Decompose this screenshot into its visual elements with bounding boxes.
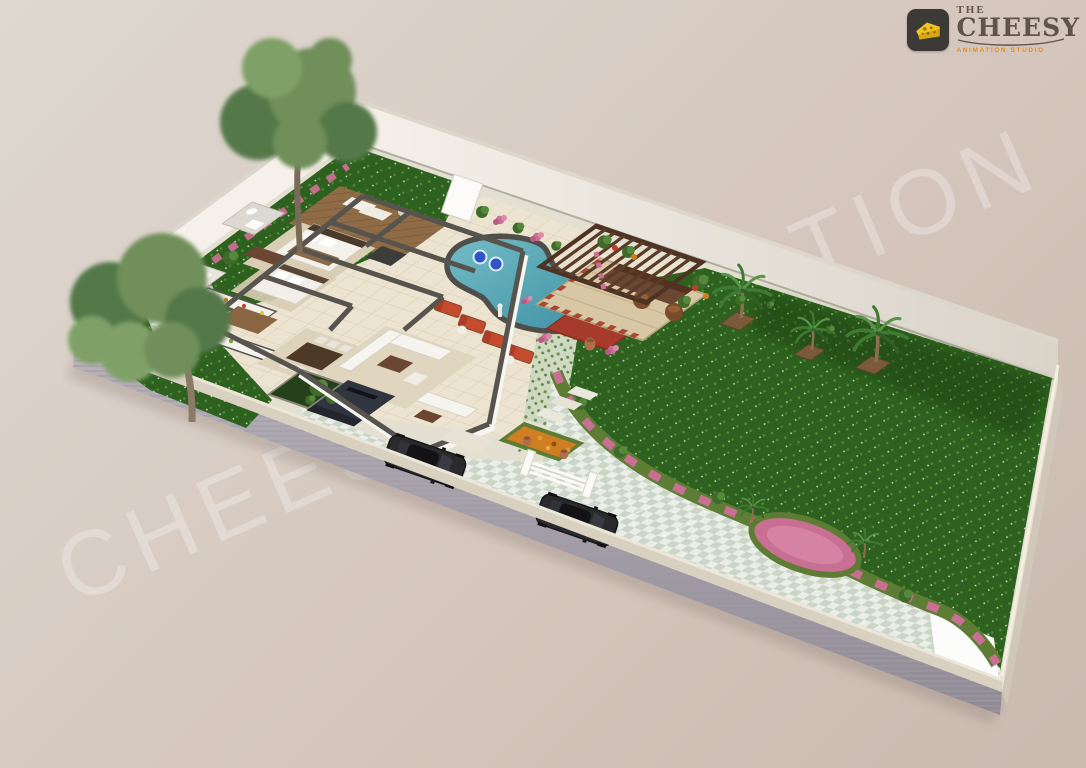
clay-pot [585, 338, 596, 351]
logo-brand-text: CHEESY [956, 15, 1080, 40]
clay-pot [523, 436, 532, 446]
clay-pot [560, 449, 569, 459]
pool-float [490, 258, 503, 271]
garden-statue [497, 303, 502, 317]
pool-float [474, 251, 487, 264]
logo-tagline: ANIMATION STUDIO [956, 48, 1080, 55]
render-canvas: CHEESY ANIMATION [0, 0, 1086, 768]
logo-swash [956, 38, 1066, 46]
floor-plan-scene: CHEESY ANIMATION [0, 0, 1086, 768]
logo: THE CHEESY ANIMATION STUDIO [907, 5, 1080, 55]
cheese-icon [907, 9, 949, 51]
